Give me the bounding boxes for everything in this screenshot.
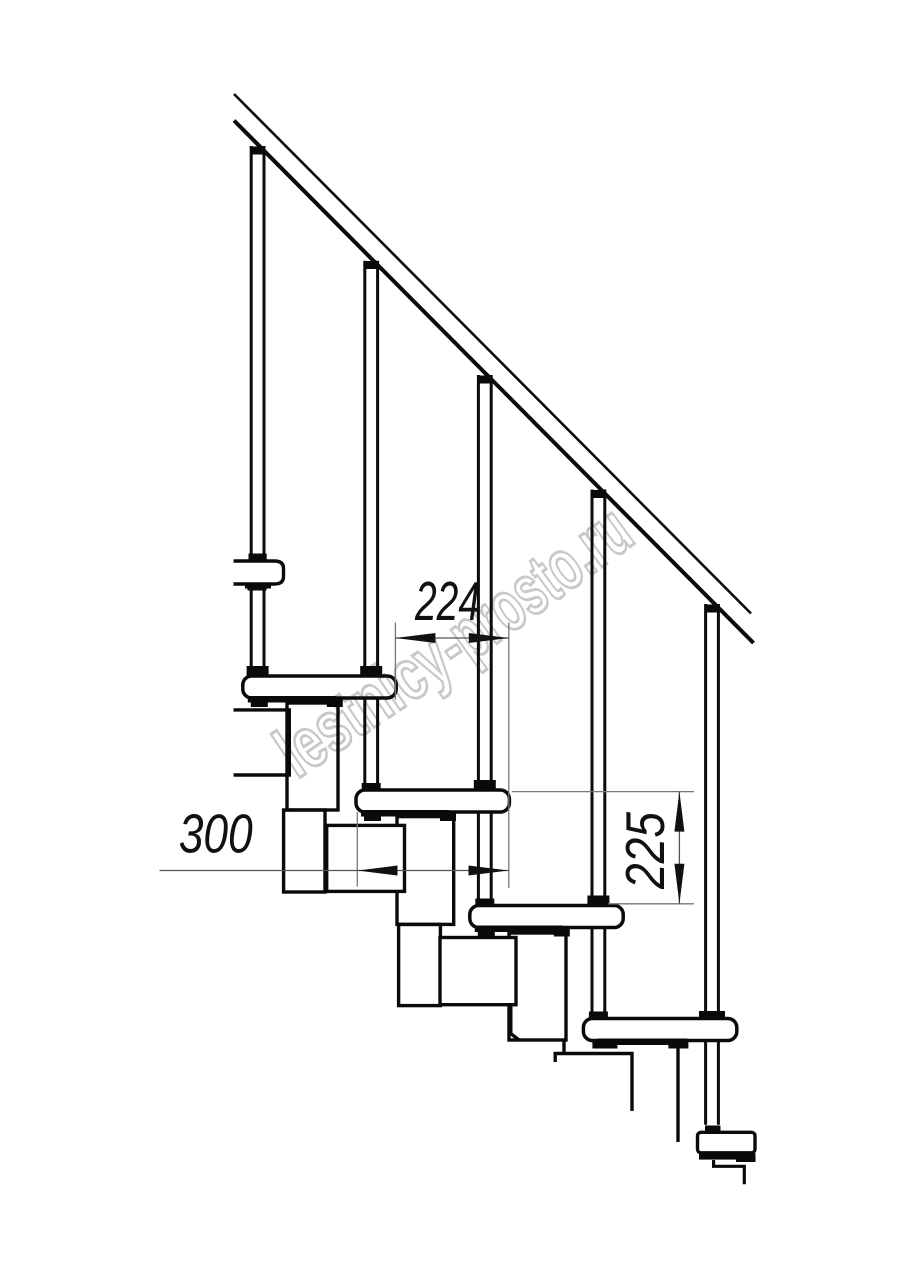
svg-text:224: 224 [414, 570, 480, 632]
svg-text:300: 300 [179, 802, 253, 864]
svg-text:225: 225 [614, 812, 676, 890]
